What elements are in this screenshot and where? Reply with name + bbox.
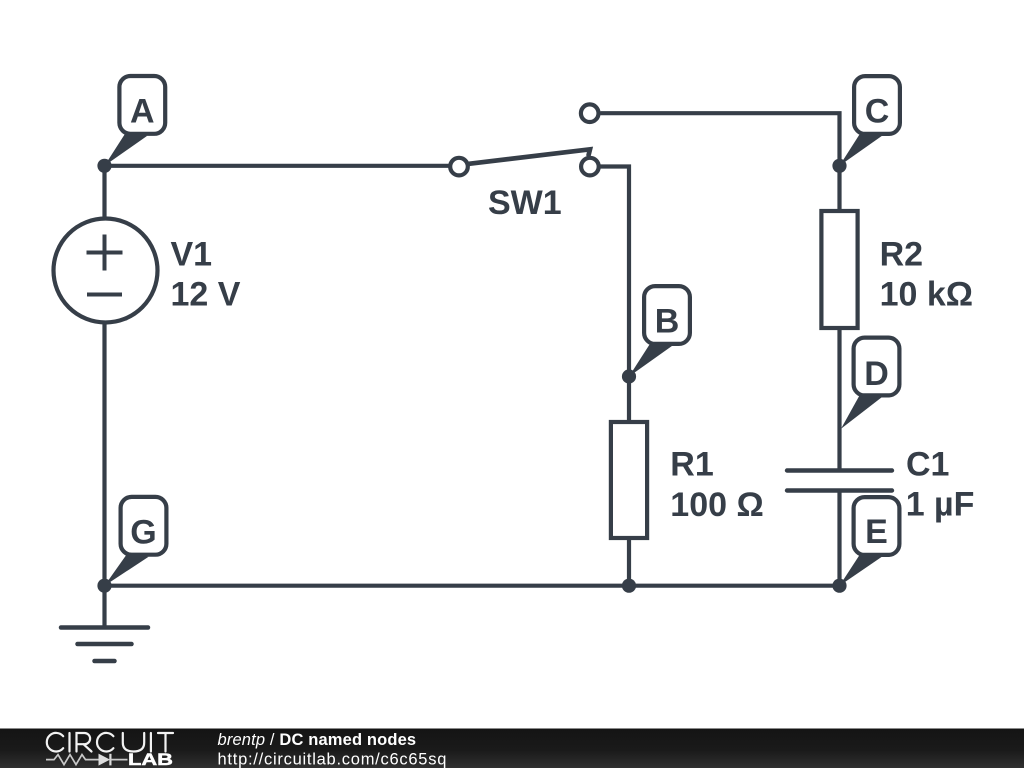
svg-text:R2: R2 xyxy=(880,236,923,274)
svg-text:SW1: SW1 xyxy=(488,184,562,222)
svg-text:A: A xyxy=(130,92,155,130)
svg-text:R1: R1 xyxy=(670,445,713,483)
svg-text:V1: V1 xyxy=(171,236,213,274)
svg-text:100 Ω: 100 Ω xyxy=(670,486,763,524)
svg-text:E: E xyxy=(865,513,888,551)
svg-text:D: D xyxy=(864,355,889,393)
svg-text:1 µF: 1 µF xyxy=(906,486,975,524)
svg-text:B: B xyxy=(655,302,680,340)
svg-text:http://circuitlab.com/c6c65sq: http://circuitlab.com/c6c65sq xyxy=(218,751,448,768)
svg-text:10 kΩ: 10 kΩ xyxy=(880,276,973,314)
svg-text:C: C xyxy=(865,92,890,130)
svg-text:brentp / DC named nodes: brentp / DC named nodes xyxy=(218,731,417,749)
svg-text:G: G xyxy=(130,514,156,552)
svg-text:C1: C1 xyxy=(906,445,949,483)
svg-text:12 V: 12 V xyxy=(171,276,241,314)
svg-text:LAB: LAB xyxy=(128,750,173,768)
